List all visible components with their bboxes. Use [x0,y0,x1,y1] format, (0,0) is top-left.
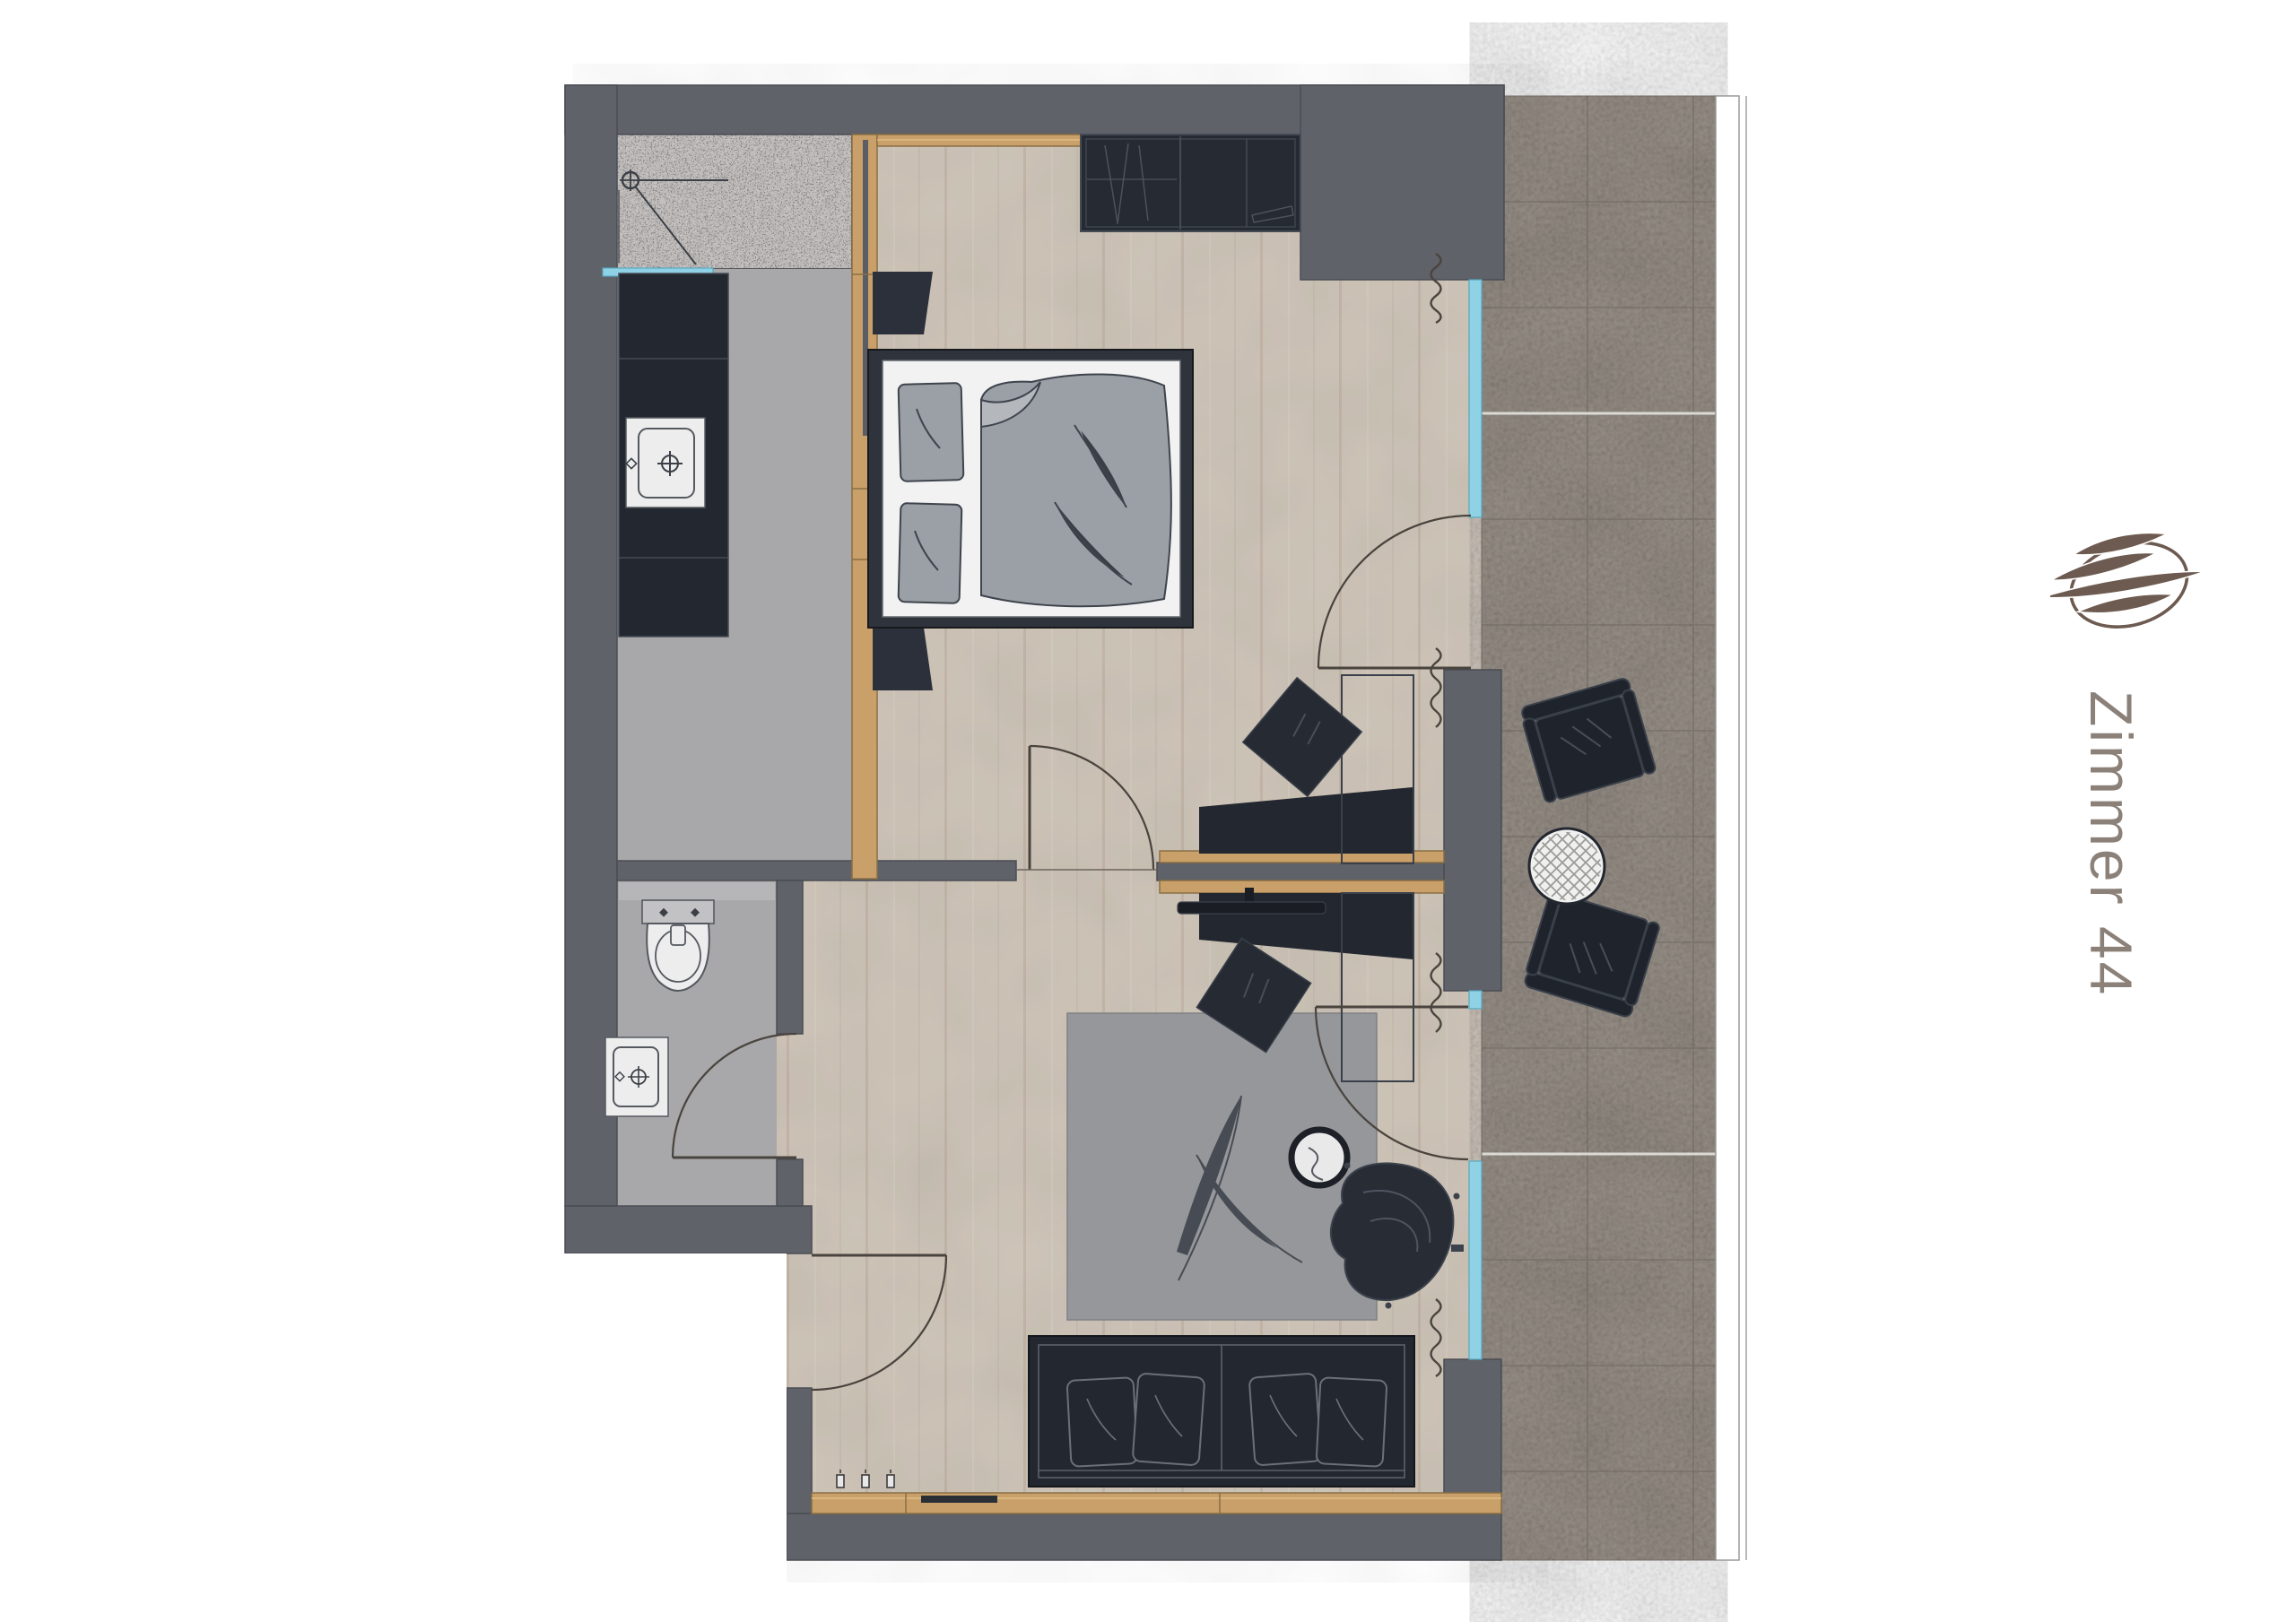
sofa-pillow [1249,1374,1322,1466]
double-bed [868,350,1193,628]
vent-strip [921,1496,997,1503]
wall-pier-top-right [1300,85,1504,280]
balcony-coffee-table [1529,828,1605,904]
desk-sideboard-top [1157,863,1444,880]
wall-pier-mid [1444,670,1501,991]
wall-wc-right-upper [777,880,803,1034]
wall-wc-right-lower [777,1159,803,1206]
desk-wood-strip-lower [1160,880,1444,893]
room-number-label: Zimmer 44 [2077,690,2145,1013]
balcony-tile-floor [1482,96,1716,1560]
candle [887,1475,894,1488]
candle [862,1475,869,1488]
bed-pillow [899,503,962,603]
nightstand-bottom [873,628,933,690]
sofa-pillow [1317,1377,1387,1467]
hotel-logo [2050,527,2221,653]
balcony-railing [1716,96,1746,1560]
window-sill-bench [812,1493,1501,1514]
outside-mask [0,1253,787,1622]
window-living-upper [1469,991,1482,1009]
candle [837,1475,844,1488]
wall-pier-bottom-right [1444,1359,1501,1514]
bed-pillow [899,383,964,481]
wall-wc-bottom [565,1206,812,1253]
side-table [1291,1130,1347,1185]
floor-plan [0,0,2296,1622]
wall-bottom [787,1514,1501,1560]
floorplan-sheet: Zimmer 44 [0,0,2296,1622]
sofa-pillow [1067,1377,1138,1467]
window-bedroom [1469,280,1482,517]
hand-basin [605,1037,668,1116]
window-living-lower [1469,1161,1482,1359]
sofa [1029,1336,1414,1487]
wall-entry-lower [787,1388,812,1514]
nightstand-top [873,272,933,334]
leaf-ellipse-logo-icon [2050,527,2221,653]
wall-bath-wc-divider [617,861,1016,880]
wc-shelf-niche [619,882,775,900]
bed-duvet [981,374,1171,606]
wardrobe [1081,134,1300,231]
vanity-sink [626,418,705,507]
